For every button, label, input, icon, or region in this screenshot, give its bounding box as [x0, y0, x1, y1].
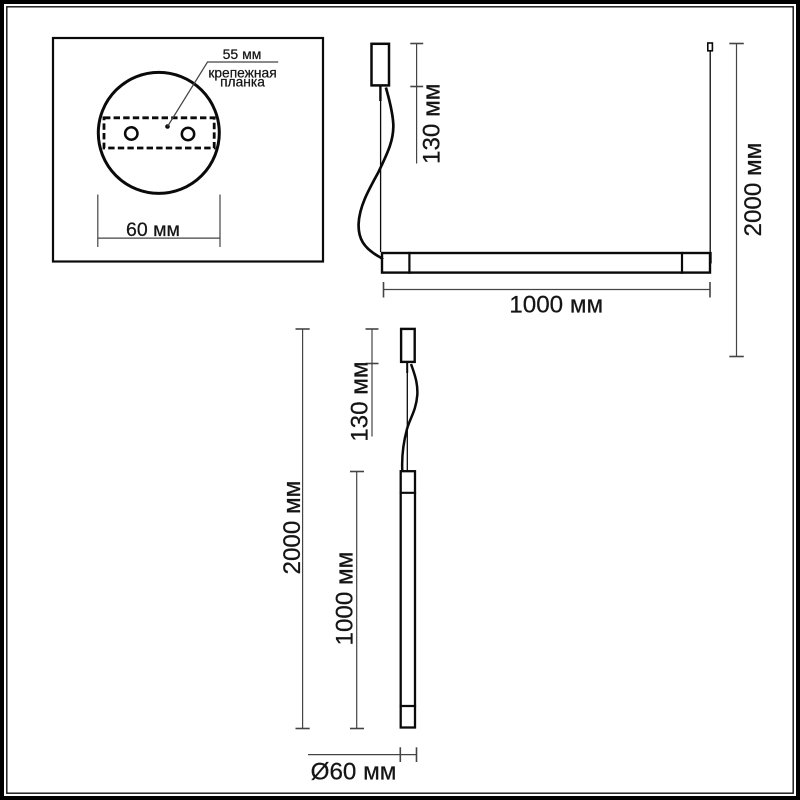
svg-text:60 мм: 60 мм [126, 219, 180, 241]
svg-text:1000 мм: 1000 мм [331, 552, 358, 646]
svg-text:2000 мм: 2000 мм [740, 143, 767, 237]
svg-text:2000 мм: 2000 мм [279, 481, 306, 575]
svg-text:1000 мм: 1000 мм [509, 291, 603, 318]
svg-text:130 мм: 130 мм [346, 361, 373, 441]
svg-text:Ø60 мм: Ø60 мм [311, 759, 397, 786]
svg-text:130 мм: 130 мм [419, 84, 446, 164]
svg-text:планка: планка [220, 75, 265, 90]
svg-text:55 мм: 55 мм [223, 46, 262, 62]
